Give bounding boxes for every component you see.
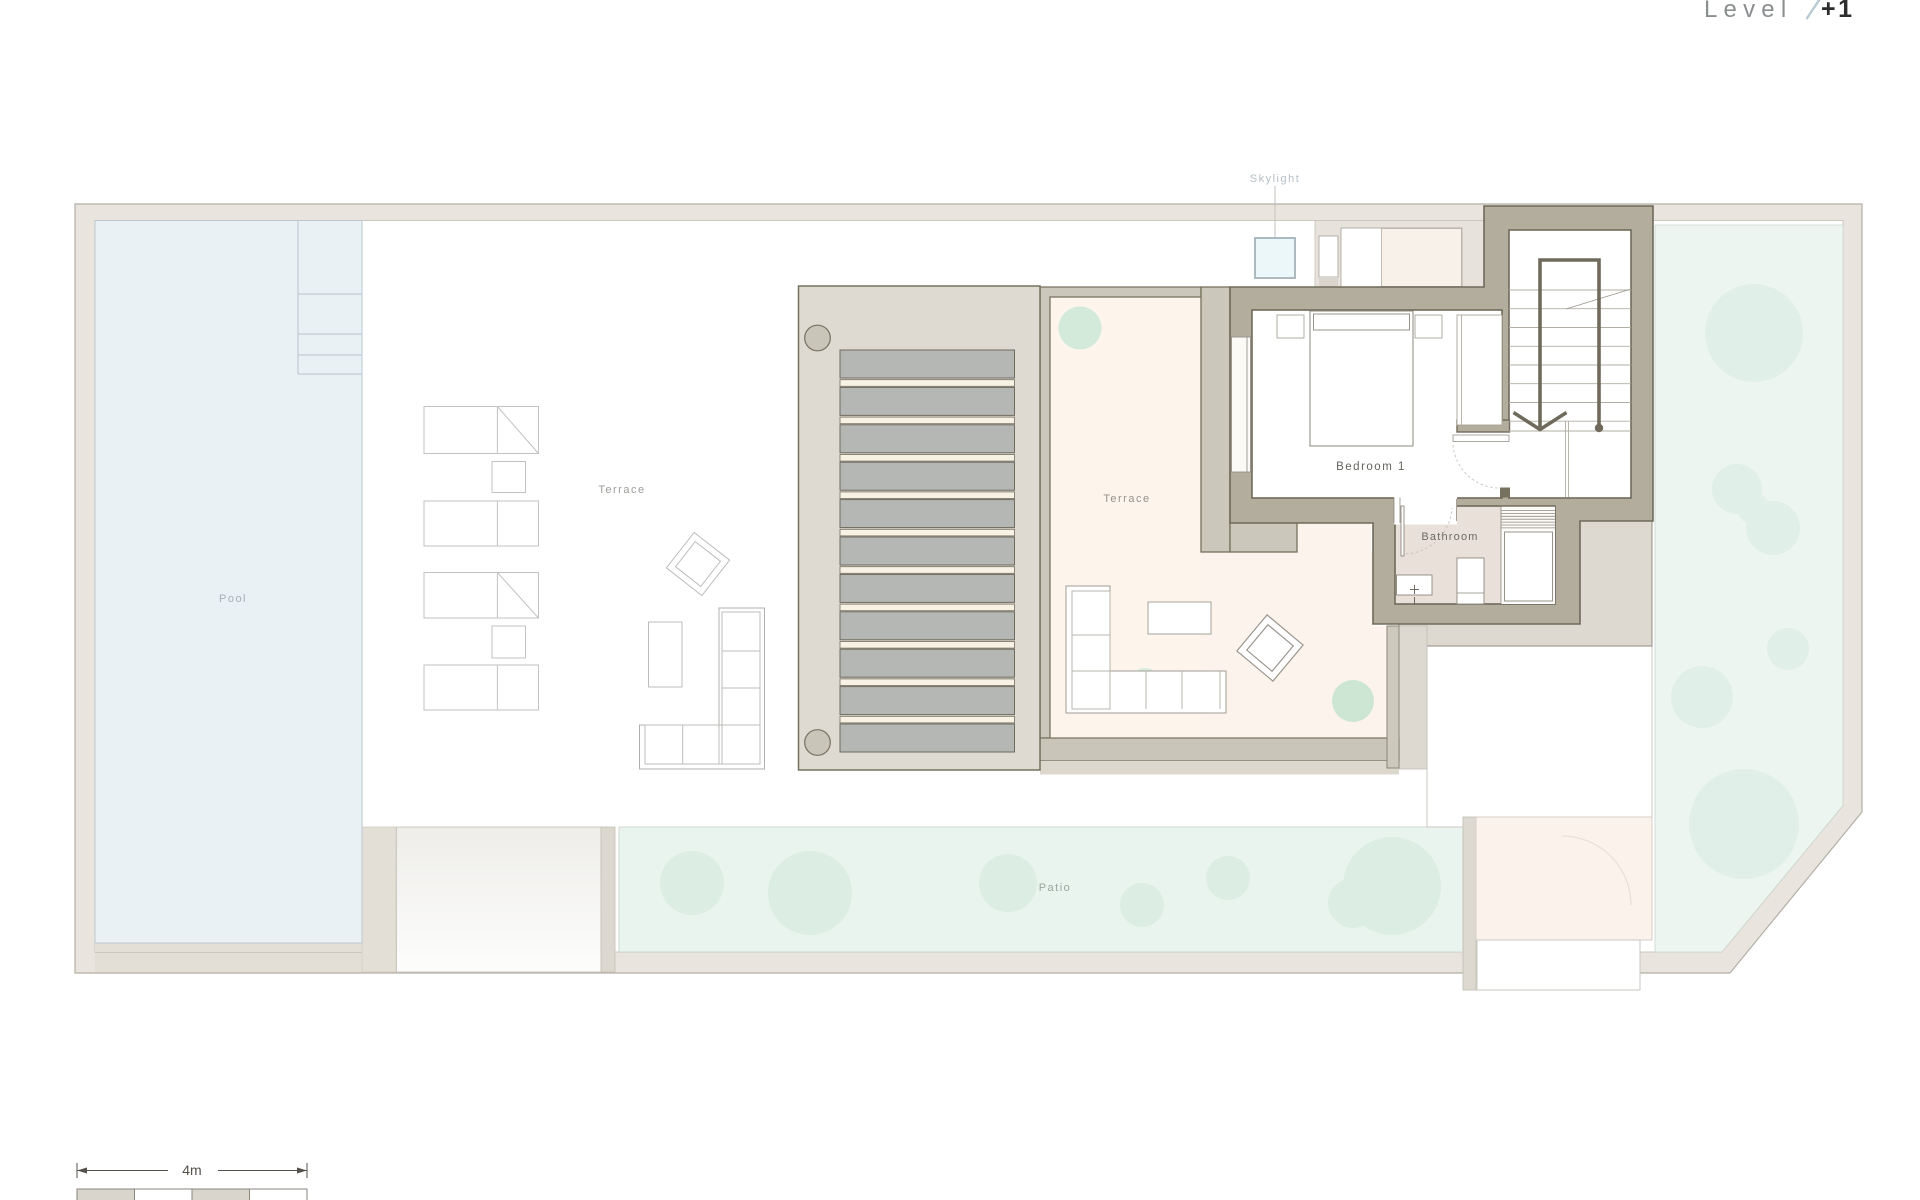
svg-text:+1: +1 bbox=[1821, 0, 1855, 23]
svg-text:Terrace: Terrace bbox=[598, 484, 645, 496]
svg-text:Level: Level bbox=[1704, 0, 1792, 23]
svg-text:4m: 4m bbox=[182, 1162, 201, 1178]
svg-text:Terrace: Terrace bbox=[1103, 493, 1150, 505]
svg-text:Pool: Pool bbox=[219, 593, 247, 605]
svg-text:Skylight: Skylight bbox=[1250, 173, 1301, 185]
svg-text:Bedroom 1: Bedroom 1 bbox=[1336, 461, 1406, 473]
svg-text:Bathroom: Bathroom bbox=[1421, 531, 1478, 543]
svg-text:Patio: Patio bbox=[1039, 882, 1072, 894]
